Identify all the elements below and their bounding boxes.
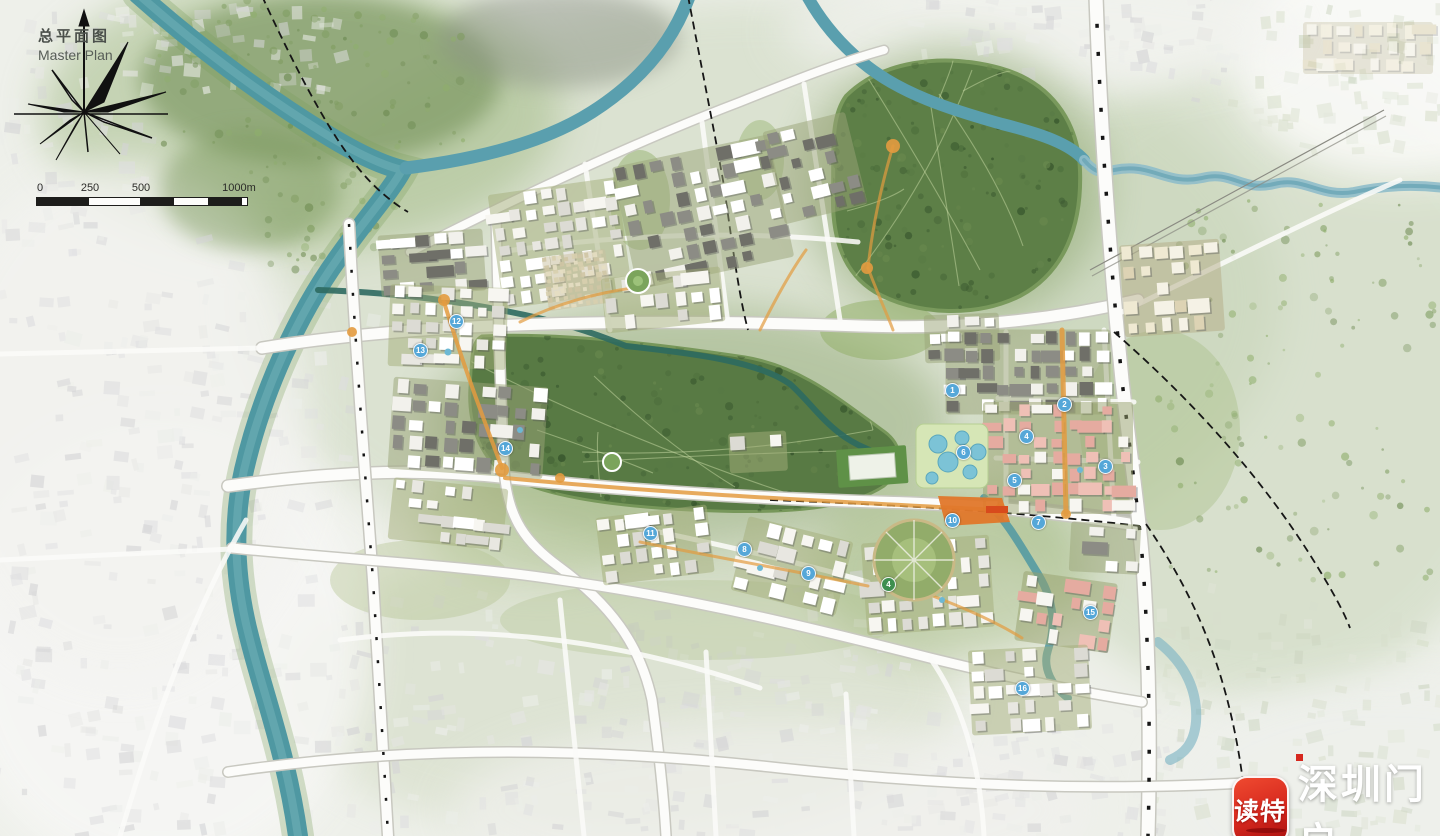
building-cluster [387, 377, 549, 480]
shenzhen-portal-wordmark: 深圳门户 [1298, 752, 1440, 836]
circular-park [874, 520, 954, 600]
building-cluster [1012, 570, 1119, 653]
north-compass-icon [0, 0, 180, 170]
plan-rendering [0, 0, 1440, 836]
dutenews-app-name: 读特 [1233, 792, 1288, 828]
plan-title-cn: 总平面图 [38, 28, 113, 47]
plan-title-en: Master Plan [38, 47, 113, 65]
scale-bar: 0 250 500 1000m [36, 182, 248, 206]
icon-swoosh-decoration [1246, 828, 1286, 833]
shenzhen-portal-text: 深圳门户 [1298, 763, 1427, 836]
building-cluster [1303, 22, 1438, 74]
dutenews-app-icon: 读特 [1232, 776, 1289, 836]
scale-label-1000: 1000m [222, 182, 256, 194]
building-cluster [980, 402, 1138, 514]
red-accent-dot [1296, 754, 1303, 761]
building-cluster [728, 431, 788, 474]
scale-label-500: 500 [132, 182, 150, 194]
building-cluster [1069, 521, 1142, 575]
scale-label-250: 250 [81, 182, 99, 194]
plan-title: 总平面图 Master Plan [38, 28, 113, 64]
scale-bar-labels: 0 250 500 1000m [36, 182, 248, 195]
pond-garden [916, 424, 988, 488]
master-plan-canvas: 124635710981112131415164 总平面图 Master Pla… [0, 0, 1440, 836]
scale-bar-graphic [36, 197, 248, 206]
stadium [836, 445, 908, 488]
watermark: 读特 深圳门户 [1232, 752, 1440, 836]
building-cluster [1119, 239, 1225, 338]
transit-plaza [938, 496, 1010, 526]
building-cluster [967, 644, 1094, 736]
scale-label-0: 0 [37, 182, 43, 194]
